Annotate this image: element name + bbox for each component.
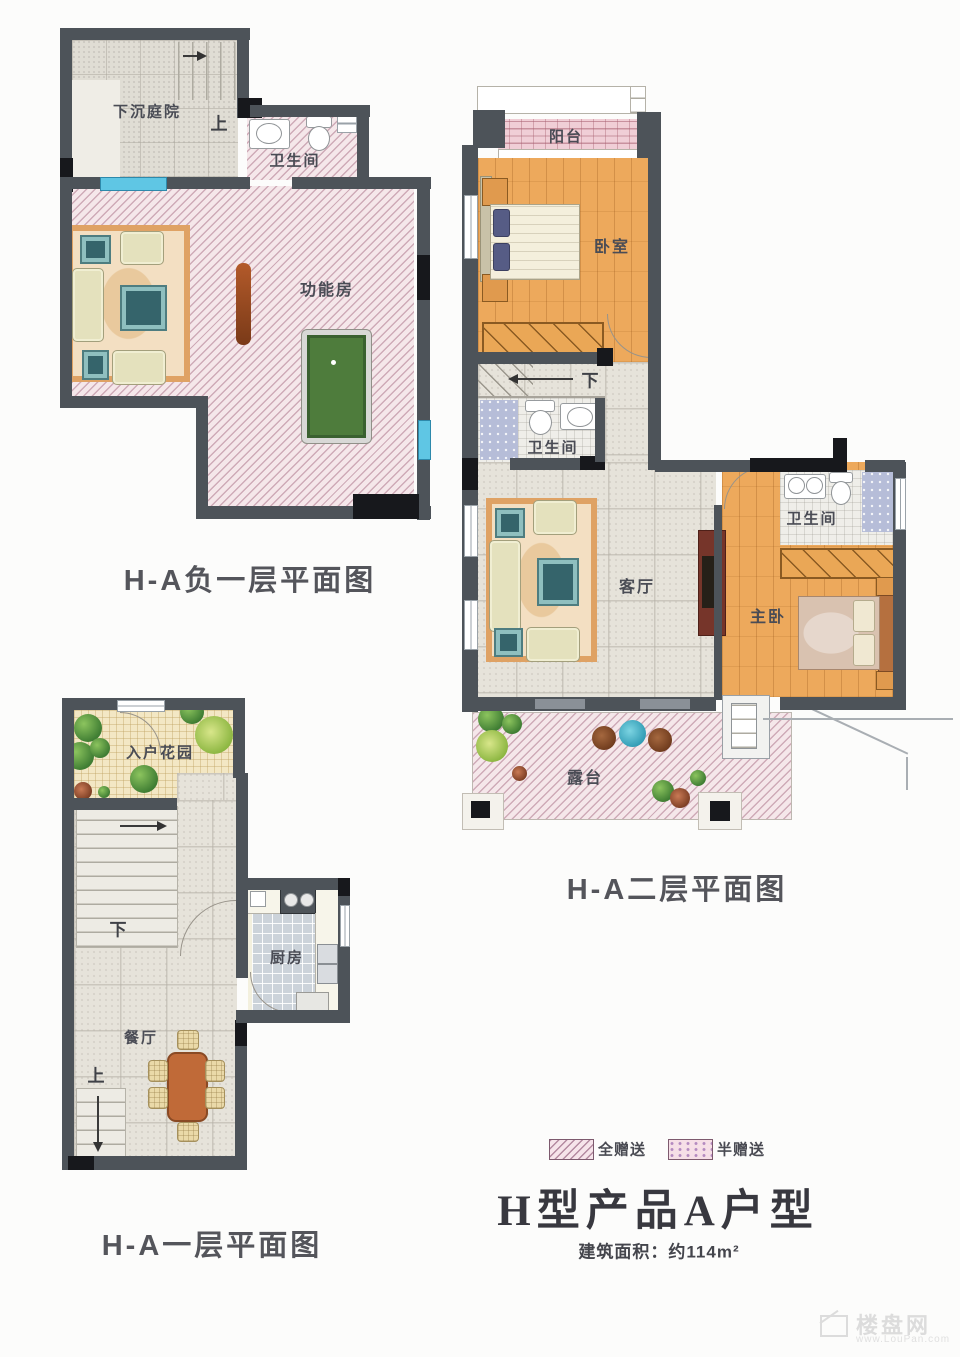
watermark-house-icon (820, 1315, 848, 1337)
watermark-site-url: www.LouPan.com (856, 1334, 950, 1345)
watermark: 楼盘网 www.LouPan.com (0, 0, 960, 1357)
floorplan-sheet: 下沉庭院 上 卫生间 功能房 H-A负一层平面图 (0, 0, 960, 1357)
